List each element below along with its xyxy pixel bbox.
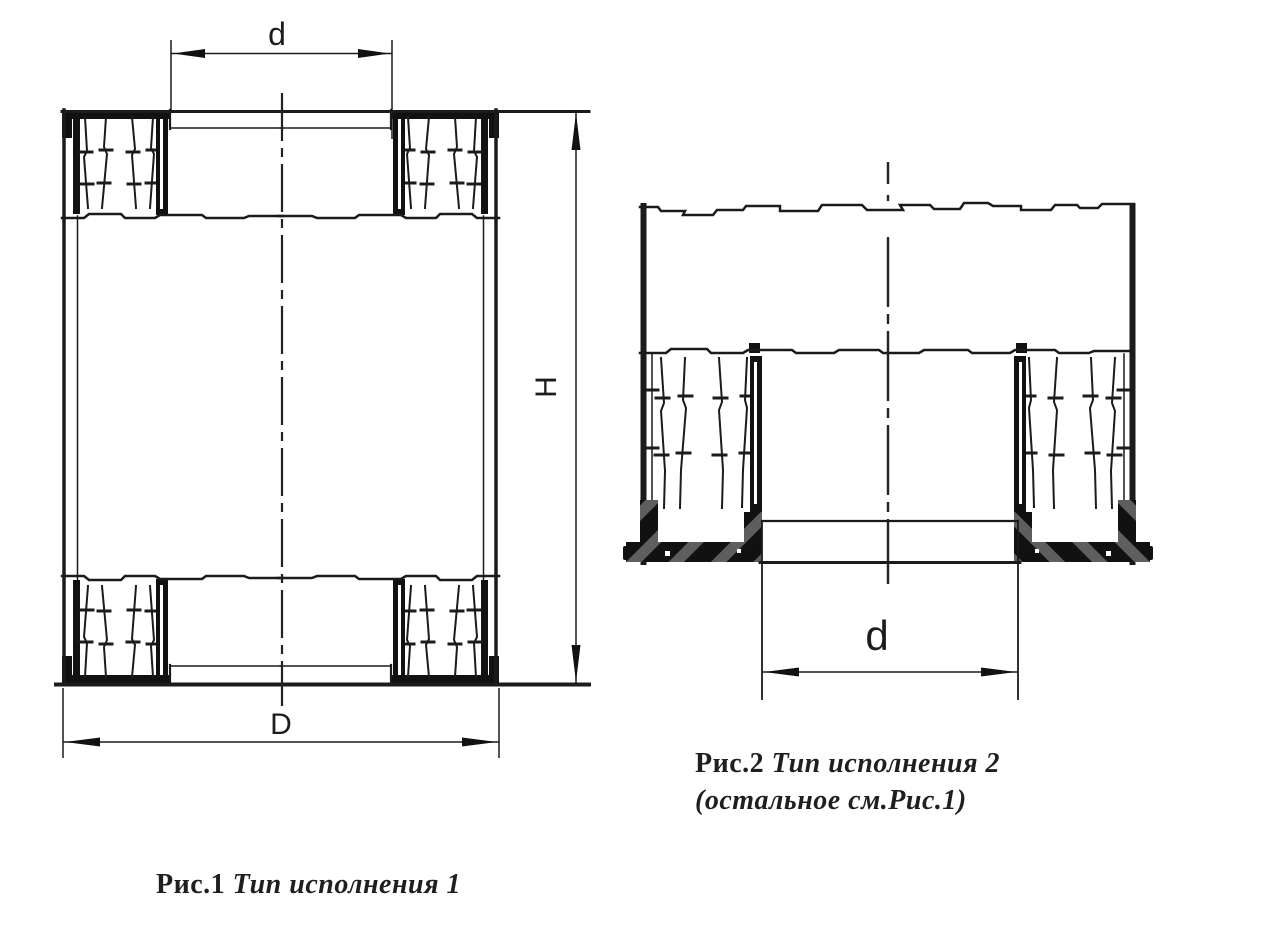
figure2-view: d	[623, 162, 1153, 700]
figure1-caption-label: Рис.1	[156, 869, 225, 900]
figure2-caption-line1: Рис.2 Тип исполнения 2	[695, 745, 1000, 782]
figure2-caption-title: Тип исполнения 2	[772, 748, 1000, 779]
figure2-dim-d	[762, 521, 1018, 700]
figure1-dim-D-label: D	[270, 708, 292, 741]
figure1-view: d D H	[56, 16, 589, 758]
figure2-caption-label: Рис.2	[695, 748, 764, 779]
filter-element-drawing: d D H	[0, 0, 1268, 952]
figure2-dim-d-label: d	[865, 612, 888, 659]
figure1-dim-d-label: d	[268, 16, 286, 52]
technical-drawing-page: d D H	[0, 0, 1268, 952]
figure1-caption-title: Тип исполнения 1	[233, 869, 461, 900]
figure1-dim-H	[572, 111, 581, 684]
figure2-caption-note: (остальное см.Рис.1)	[695, 782, 1000, 819]
figure1-dim-H-label: H	[530, 376, 563, 398]
figure1-caption: Рис.1 Тип исполнения 1	[156, 869, 461, 901]
figure2-caption: Рис.2 Тип исполнения 2 (остальное см.Рис…	[695, 745, 1000, 819]
